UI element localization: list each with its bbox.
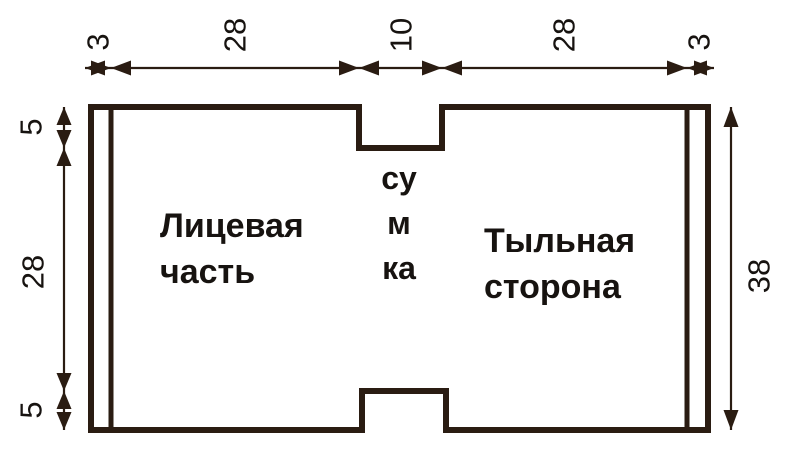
arrowhead: [442, 61, 462, 76]
dim-label-top-back-width: 28: [549, 18, 580, 52]
arrowhead: [111, 61, 131, 76]
top-dimension: [85, 61, 714, 76]
arrowhead: [724, 410, 739, 430]
dim-label-top-front-width: 28: [220, 18, 251, 52]
back-panel-label: Тыльная сторона: [484, 218, 635, 310]
dim-label-left-bottom: 5: [16, 401, 47, 418]
arrowhead: [422, 61, 442, 76]
dim-label-top-seam-left: 3: [83, 33, 114, 50]
left-dimension: [57, 107, 72, 430]
arrowhead: [57, 107, 72, 125]
arrowhead: [57, 412, 72, 430]
arrowhead: [57, 130, 72, 148]
right-dimension: [724, 107, 739, 430]
back-panel-label-line1: Тыльная: [484, 218, 635, 264]
front-panel-label-line1: Лицевая: [160, 203, 304, 249]
arrowhead: [57, 373, 72, 391]
dim-label-top-gusset: 10: [386, 18, 417, 52]
bag-pattern-diagram: 3 28 10 28 3 5 28 5 38 Лицевая часть Тыл…: [0, 0, 792, 464]
front-panel-label: Лицевая часть: [160, 203, 304, 295]
dim-label-right-height: 38: [744, 259, 775, 293]
front-panel-label-line2: часть: [160, 249, 304, 295]
dim-label-left-top: 5: [16, 118, 47, 135]
dim-label-left-middle: 28: [18, 255, 49, 289]
center-vertical-label: сумка: [381, 156, 417, 291]
arrowhead: [359, 61, 379, 76]
arrowhead: [57, 148, 72, 166]
dim-label-top-seam-right: 3: [684, 33, 715, 50]
back-panel-label-line2: сторона: [484, 264, 635, 310]
arrowhead: [57, 391, 72, 409]
arrowhead: [724, 107, 739, 127]
arrowhead: [339, 61, 359, 76]
arrowhead: [667, 61, 687, 76]
